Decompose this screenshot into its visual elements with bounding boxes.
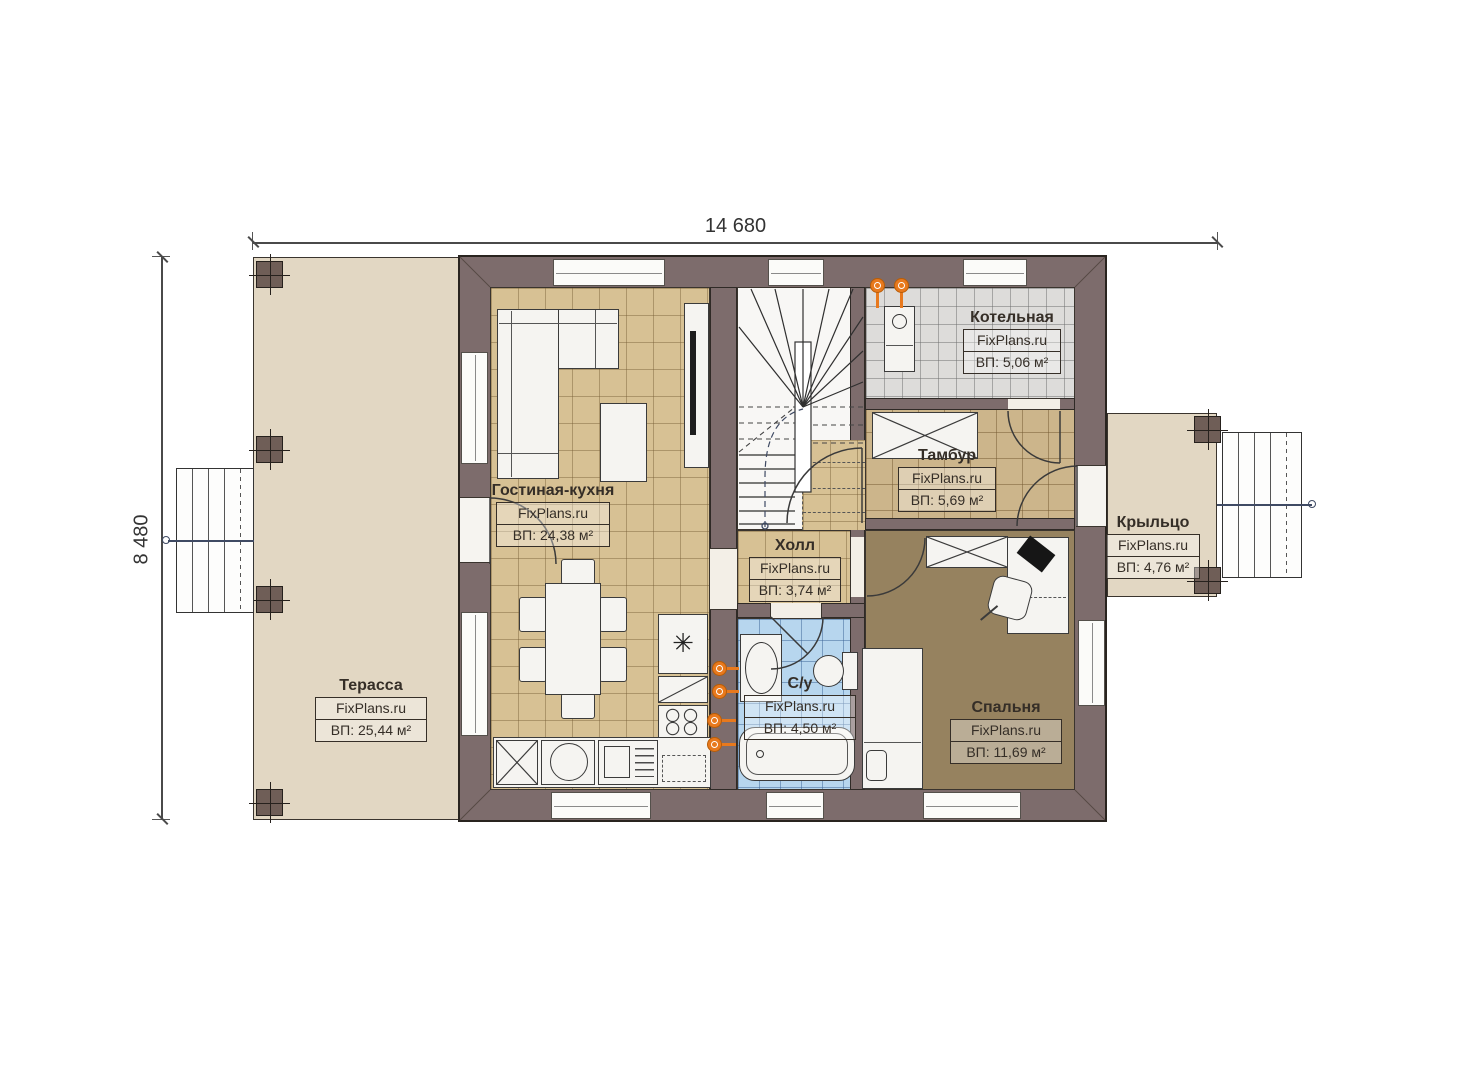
direction-origin-dot xyxy=(1308,500,1316,508)
porch-post xyxy=(1194,416,1221,443)
utility-stem xyxy=(721,743,736,746)
oven-vents xyxy=(635,748,654,777)
room-label-bedroom: Спальня FixPlans.ru ВП: 11,69 м² xyxy=(948,698,1064,764)
stairs-direction-line xyxy=(168,540,254,542)
door-arc-bathroom xyxy=(770,616,824,670)
window xyxy=(766,792,824,819)
counter-reserved-dashed xyxy=(662,755,706,782)
room-label-bathroom: С/у FixPlans.ru ВП: 4,50 м² xyxy=(739,674,861,740)
utility-stem xyxy=(726,690,739,693)
dining-chair xyxy=(561,693,595,719)
oven-door xyxy=(604,746,630,778)
utility-point-icon xyxy=(894,278,909,293)
fridge-symbol: ✳ xyxy=(672,628,694,658)
stairs-direction-line xyxy=(1217,504,1312,506)
tv-stand xyxy=(684,303,709,468)
room-area: ВП: 24,38 м² xyxy=(497,524,609,546)
door-arc-boiler xyxy=(1007,410,1062,465)
window xyxy=(1078,620,1105,706)
watermark-text: FixPlans.ru xyxy=(951,720,1061,741)
watermark-text: FixPlans.ru xyxy=(316,698,426,719)
watermark-text: FixPlans.ru xyxy=(750,558,840,579)
window xyxy=(551,792,651,819)
bathtub-drain xyxy=(756,750,764,758)
door-arc-bedroom xyxy=(866,537,927,598)
window xyxy=(553,259,665,286)
floor-plan: 14 680 8 480 xyxy=(0,0,1473,1080)
boiler-divider xyxy=(886,345,913,346)
washing-machine xyxy=(496,740,538,785)
terrace-post xyxy=(256,436,283,463)
utility-stem xyxy=(726,667,739,670)
utility-point-icon xyxy=(870,278,885,293)
x-mark xyxy=(497,741,537,784)
utility-point-icon xyxy=(712,661,727,676)
room-label-porch: Крыльцо FixPlans.ru ВП: 4,76 м² xyxy=(1102,513,1204,579)
dining-chair xyxy=(519,647,547,682)
room-area: ВП: 4,76 м² xyxy=(1107,556,1199,578)
window xyxy=(963,259,1027,286)
room-name: Терасса xyxy=(306,676,436,695)
room-name: Холл xyxy=(731,536,859,555)
dining-chair xyxy=(519,597,547,632)
terrace-post xyxy=(256,789,283,816)
utility-point-icon xyxy=(707,713,722,728)
window xyxy=(768,259,824,286)
room-name: Котельная xyxy=(960,308,1064,327)
direction-origin-dot xyxy=(162,536,170,544)
watermark-text: FixPlans.ru xyxy=(745,696,855,717)
dimension-height-label: 8 480 xyxy=(131,500,154,580)
dining-chair xyxy=(561,559,595,585)
room-name: Гостиная-кухня xyxy=(490,481,616,500)
room-label-living: Гостиная-кухня FixPlans.ru ВП: 24,38 м² xyxy=(490,481,616,547)
fridge: ✳ xyxy=(658,614,708,674)
room-name: Спальня xyxy=(948,698,1064,717)
window xyxy=(461,612,488,736)
kitchen-sink xyxy=(550,743,588,781)
dining-chair xyxy=(599,647,627,682)
bed-blanket-line xyxy=(864,742,921,743)
tv xyxy=(690,331,696,435)
boiler-dial xyxy=(892,314,907,329)
kitchen-cabinet xyxy=(658,676,708,703)
room-area: ВП: 5,69 м² xyxy=(899,489,995,511)
utility-point-icon xyxy=(712,684,727,699)
sofa-armrest-line xyxy=(498,453,558,454)
room-name: Крыльцо xyxy=(1102,513,1204,532)
dining-chair xyxy=(599,597,627,632)
window xyxy=(923,792,1021,819)
room-label-vestibule: Тамбур FixPlans.ru ВП: 5,69 м² xyxy=(894,446,1000,512)
room-label-hall: Холл FixPlans.ru ВП: 3,74 м² xyxy=(731,536,859,602)
room-name: С/у xyxy=(739,674,861,693)
room-area: ВП: 5,06 м² xyxy=(964,351,1060,373)
door-opening-terrace xyxy=(460,497,490,563)
room-area: ВП: 4,50 м² xyxy=(745,717,855,739)
window xyxy=(461,352,488,464)
utility-point-icon xyxy=(707,737,722,752)
watermark-text: FixPlans.ru xyxy=(899,468,995,489)
dimension-width-line xyxy=(253,242,1218,244)
pillow xyxy=(866,750,887,781)
door-arc-entry xyxy=(1016,465,1078,527)
coffee-table xyxy=(600,403,647,482)
room-label-boiler: Котельная FixPlans.ru ВП: 5,06 м² xyxy=(960,308,1064,374)
room-name: Тамбур xyxy=(894,446,1000,465)
sofa-armrest-line xyxy=(595,310,596,368)
room-label-terrace: Терасса FixPlans.ru ВП: 25,44 м² xyxy=(306,676,436,742)
utility-stem xyxy=(721,719,736,722)
room-area: ВП: 3,74 м² xyxy=(750,579,840,601)
wardrobe xyxy=(926,536,1008,568)
terrace-post xyxy=(256,586,283,613)
sofa-back-line xyxy=(499,323,617,324)
watermark-text: FixPlans.ru xyxy=(497,503,609,524)
door-arc-vestibule-hall xyxy=(786,447,863,524)
room-area: ВП: 25,44 м² xyxy=(316,719,426,741)
dining-table xyxy=(545,583,601,695)
watermark-text: FixPlans.ru xyxy=(964,330,1060,351)
watermark-text: FixPlans.ru xyxy=(1107,535,1199,556)
stove xyxy=(658,705,708,738)
terrace-post xyxy=(256,261,283,288)
dimension-width-label: 14 680 xyxy=(253,215,1218,238)
room-area: ВП: 11,69 м² xyxy=(951,741,1061,763)
